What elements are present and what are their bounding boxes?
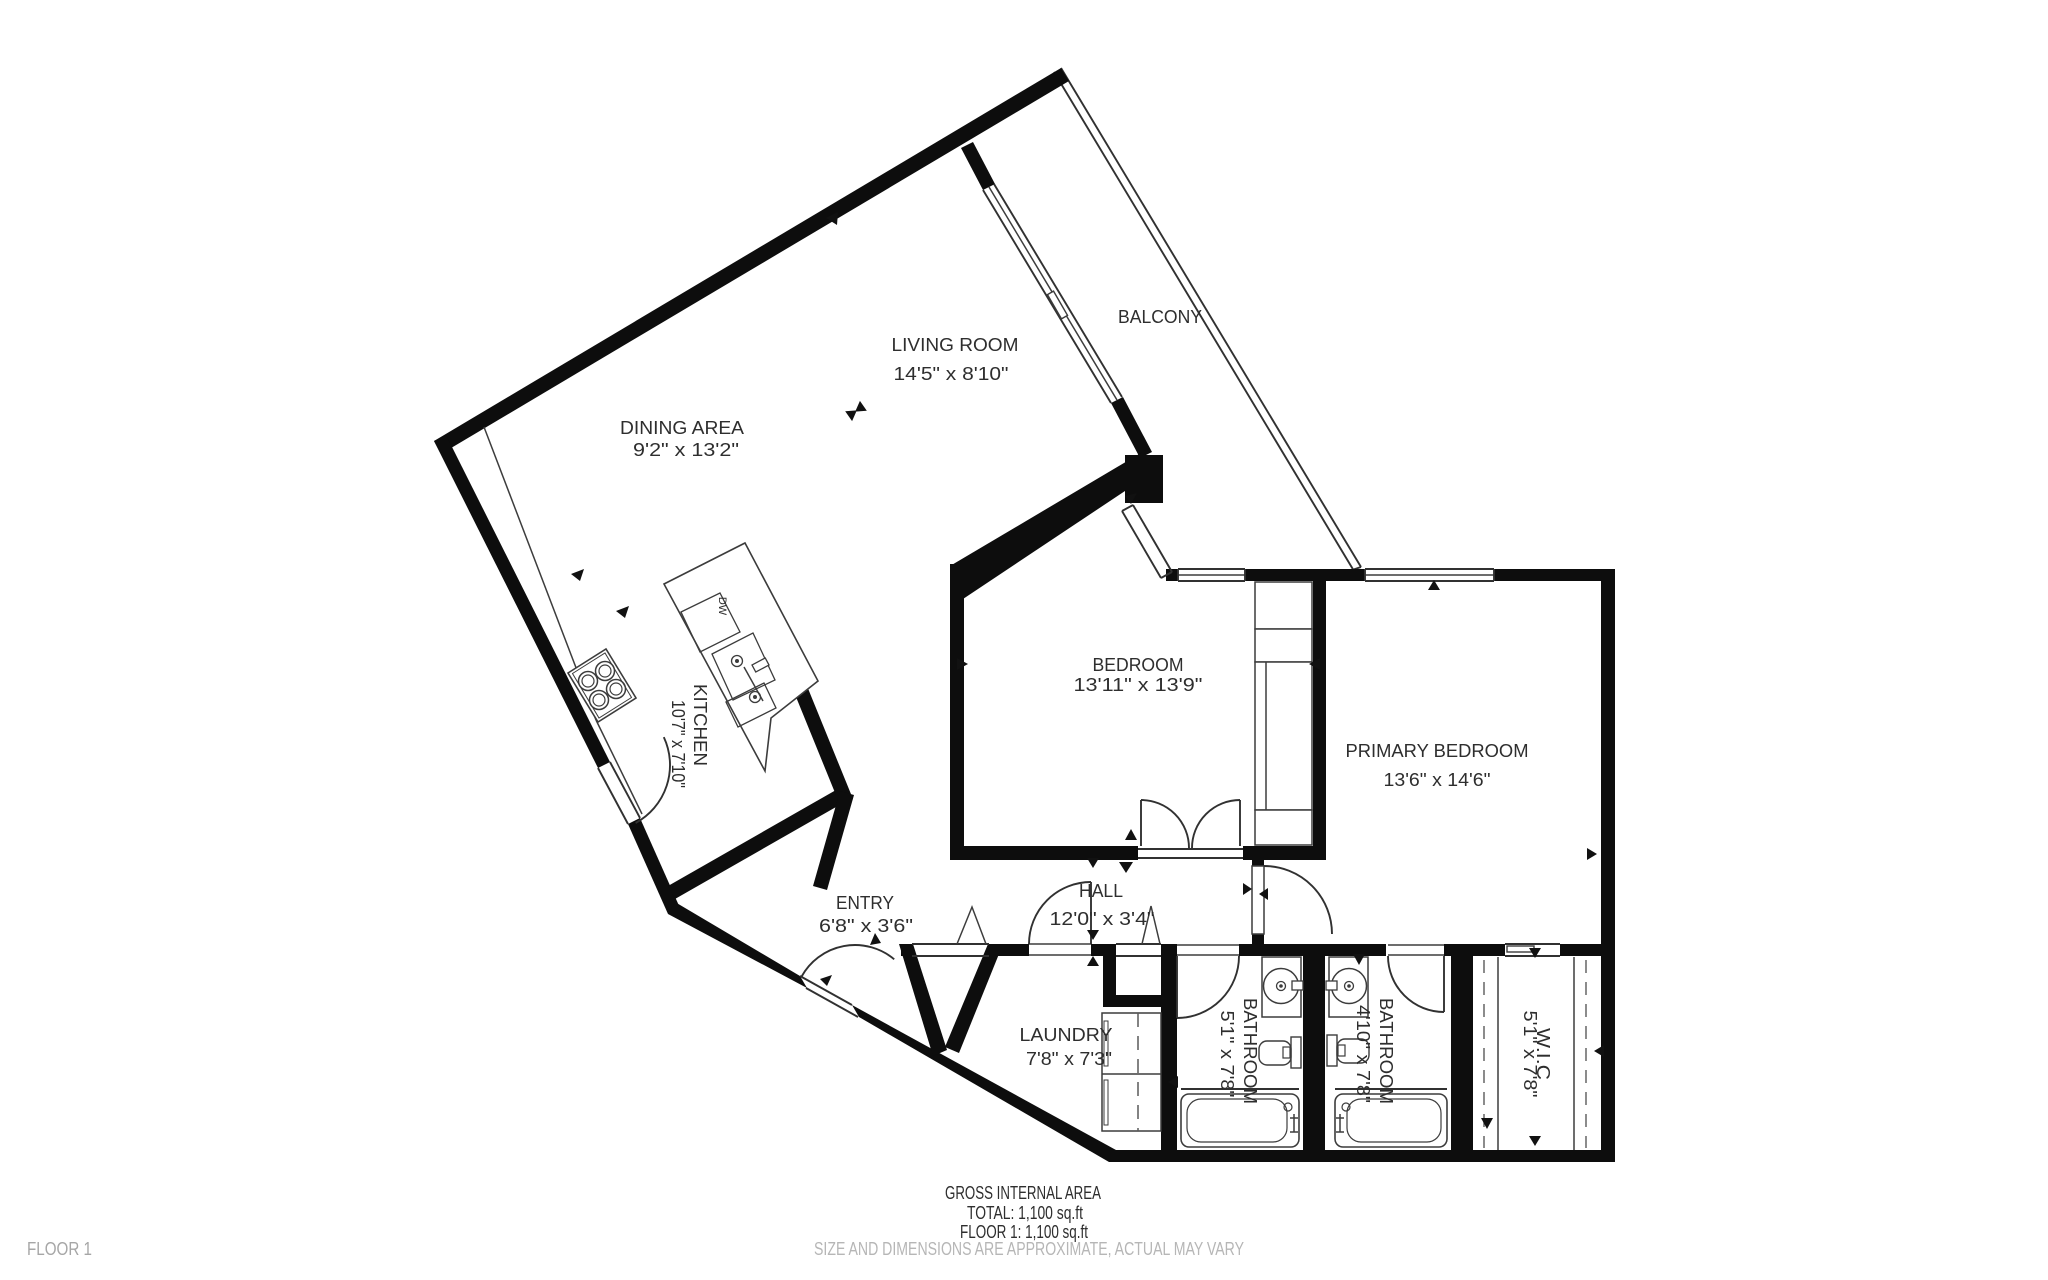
svg-text:4'10" x 7'8": 4'10" x 7'8" [1353, 1005, 1374, 1103]
svg-text:DW: DW [716, 597, 728, 616]
svg-text:9'2" x 13'2": 9'2" x 13'2" [633, 439, 739, 460]
svg-text:10'7" x 7'10": 10'7" x 7'10" [668, 700, 689, 788]
svg-text:DINING AREA: DINING AREA [620, 417, 745, 438]
svg-text:TOTAL: 1,100 sq.ft: TOTAL: 1,100 sq.ft [967, 1202, 1083, 1223]
svg-text:PRIMARY BEDROOM: PRIMARY BEDROOM [1346, 740, 1529, 761]
svg-text:5'1" x 7'8": 5'1" x 7'8" [1217, 1011, 1238, 1098]
svg-text:HALL: HALL [1079, 880, 1123, 901]
svg-text:GROSS INTERNAL AREA: GROSS INTERNAL AREA [945, 1182, 1101, 1203]
svg-text:FLOOR 1: FLOOR 1 [27, 1238, 92, 1259]
svg-text:BEDROOM: BEDROOM [1093, 654, 1184, 675]
svg-text:13'11" x 13'9": 13'11" x 13'9" [1074, 674, 1203, 695]
svg-text:5'1" x 7'8": 5'1" x 7'8" [1520, 1011, 1541, 1098]
svg-text:13'6" x 14'6": 13'6" x 14'6" [1384, 769, 1491, 790]
svg-text:BATHROOM: BATHROOM [1376, 998, 1397, 1104]
svg-text:SIZE AND DIMENSIONS ARE APPROX: SIZE AND DIMENSIONS ARE APPROXIMATE, ACT… [814, 1238, 1244, 1259]
svg-text:7'8" x 7'3": 7'8" x 7'3" [1026, 1048, 1112, 1069]
svg-text:KITCHEN: KITCHEN [690, 684, 711, 766]
svg-text:LAUNDRY: LAUNDRY [1020, 1024, 1113, 1045]
svg-text:14'5" x 8'10": 14'5" x 8'10" [894, 363, 1009, 384]
svg-text:LIVING ROOM: LIVING ROOM [892, 334, 1019, 355]
svg-text:ENTRY: ENTRY [836, 892, 894, 913]
svg-text:BALCONY: BALCONY [1118, 306, 1202, 327]
svg-text:12'0" x 3'4": 12'0" x 3'4" [1050, 908, 1155, 929]
svg-text:6'8" x 3'6": 6'8" x 3'6" [819, 915, 913, 936]
svg-text:BATHROOM: BATHROOM [1240, 998, 1261, 1104]
